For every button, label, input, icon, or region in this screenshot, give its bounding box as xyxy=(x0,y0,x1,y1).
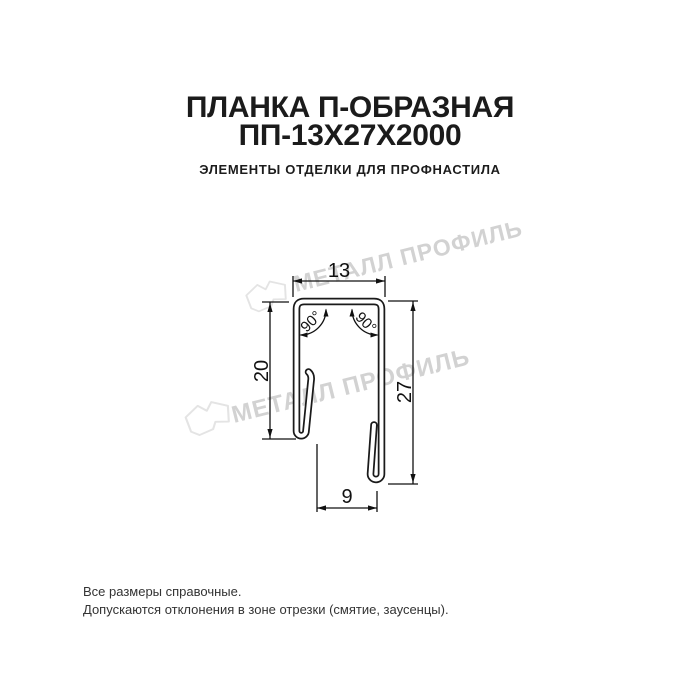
angle-annotation-left: 90° xyxy=(297,308,328,338)
angle-left-label: 90° xyxy=(297,308,325,336)
angle-left-arrow-top xyxy=(324,309,329,317)
dim-20-arrow-bottom xyxy=(267,429,272,438)
dim-27-label: 27 xyxy=(394,381,416,403)
dim-27-arrow-top xyxy=(410,302,415,311)
watermark-layer: МЕТАЛЛ ПРОФИЛЬ МЕТАЛЛ ПРОФИЛЬ xyxy=(184,215,526,437)
watermark-text-top: МЕТАЛЛ ПРОФИЛЬ xyxy=(291,215,525,297)
dim-9-arrow-left xyxy=(317,505,326,510)
angle-right-arrow-top xyxy=(350,309,355,317)
metall-profil-logo-watermark xyxy=(244,279,289,314)
dim-9-label: 9 xyxy=(341,486,352,508)
dim-13-arrow-right xyxy=(376,278,385,283)
angle-right-label: 90° xyxy=(352,309,380,337)
dim-9-arrow-right xyxy=(368,505,377,510)
dim-13-label: 13 xyxy=(328,260,350,282)
footer-note-line2: Допускаются отклонения в зоне отрезки (с… xyxy=(83,601,449,619)
dim-27-arrow-bottom xyxy=(410,474,415,483)
dimension-right-height: 27 xyxy=(388,301,418,484)
footer-note-line1: Все размеры справочные. xyxy=(83,583,449,601)
metall-profil-logo-watermark xyxy=(184,399,233,437)
watermark-text-middle: МЕТАЛЛ ПРОФИЛЬ xyxy=(229,343,473,428)
dim-20-label: 20 xyxy=(251,360,273,382)
footer-notes: Все размеры справочные. Допускаются откл… xyxy=(83,583,449,618)
angle-annotation-right: 90° xyxy=(350,309,380,338)
angle-right-arrow-side xyxy=(371,333,379,338)
page: ПЛАНКА П-ОБРАЗНАЯ ПП-13Х27Х2000 ЭЛЕМЕНТЫ… xyxy=(0,0,700,700)
